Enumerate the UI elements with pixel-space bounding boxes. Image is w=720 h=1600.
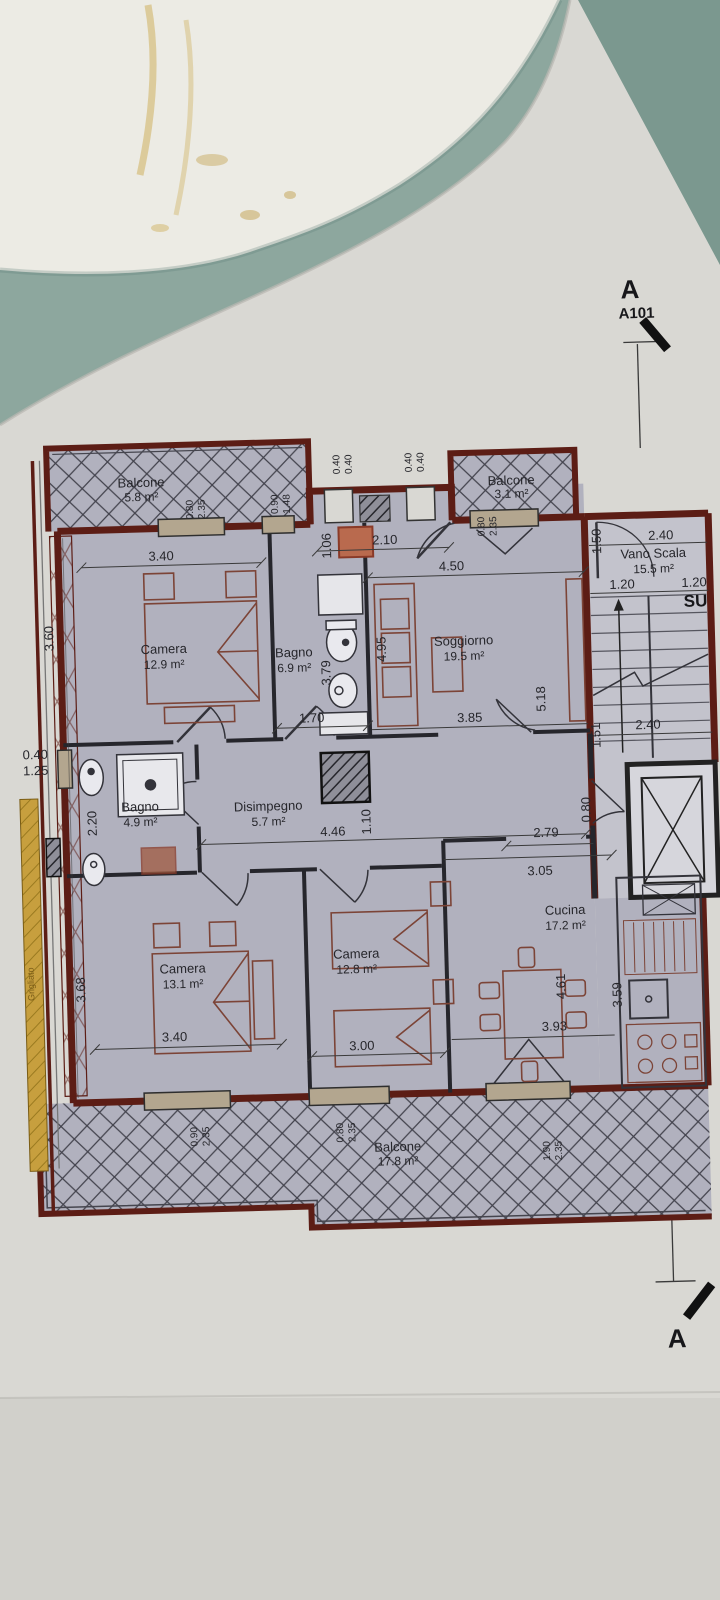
dim-scala-width: 2.40 — [648, 527, 674, 543]
disimpegno-area: 5.7 m² — [251, 814, 285, 829]
dim-hall-passage: 0.80 — [578, 797, 594, 823]
dim-soggiorno-width: 4.50 — [439, 558, 465, 574]
window-bagno1 — [262, 516, 294, 534]
dim-left-window-h: 1.25 — [23, 763, 49, 779]
section-letter-bottom: A — [667, 1323, 687, 1354]
dim-camera3-width: 3.00 — [349, 1038, 375, 1054]
dim-soggiorno-depth2: 5.18 — [533, 686, 549, 712]
bagno1-name: Bagno — [275, 644, 313, 660]
dim-bagno1-window-h: 1.48 — [281, 494, 293, 514]
dim-camera2-width: 3.40 — [162, 1029, 188, 1045]
dim-b2-door-h: 2.35 — [488, 516, 500, 536]
stairs-up-label: SU — [684, 591, 708, 611]
camera3-area: 12.8 m² — [336, 962, 377, 977]
dim-soggiorno-width2: 3.85 — [457, 710, 483, 726]
entry-cabinet — [338, 527, 373, 558]
camera2-name: Camera — [159, 960, 206, 976]
laundry-box — [141, 847, 176, 874]
balcone-tl-area: 5.8 m² — [124, 490, 158, 505]
dim-b1-window-w: 0.80 — [185, 499, 197, 519]
dim-bagno2-depth: 2.20 — [84, 811, 100, 837]
window-left-small — [57, 750, 72, 788]
window-camera3 — [309, 1086, 389, 1105]
paper-fold-shade — [0, 1398, 720, 1600]
balcone-b-name: Balcone — [374, 1138, 421, 1154]
soggiorno-area: 19.5 m² — [443, 648, 484, 663]
dim-cucina-top: 3.05 — [527, 863, 553, 879]
balcony-bottom — [38, 1085, 711, 1235]
dim-camera2-depth: 3.68 — [73, 977, 89, 1003]
pillar-left — [324, 489, 353, 523]
dim-cucina-door-h: 2.35 — [554, 1140, 566, 1160]
dim-flight1: 1.20 — [609, 576, 635, 592]
section-letter-top: A — [620, 274, 640, 305]
bagno1-area: 6.9 m² — [277, 660, 311, 675]
dim-entry-width: 2.10 — [372, 532, 398, 548]
dim-cam2-window-h: 2.35 — [201, 1126, 213, 1146]
pillar-right — [406, 487, 435, 521]
grating-strip-label: Grigliato — [26, 967, 37, 1001]
dim-pillar-left-h: 0.40 — [343, 454, 355, 474]
bagno2-area: 4.9 m² — [123, 815, 157, 830]
dim-pillar-left-w: 0.40 — [331, 454, 343, 474]
cucina-name: Cucina — [545, 902, 587, 918]
floor-plan-sheet: A A101 A — [0, 0, 720, 1600]
camera1-area: 12.9 m² — [144, 657, 185, 672]
section-code: A101 — [618, 305, 654, 323]
dim-b2-door-w: 0.80 — [476, 516, 488, 536]
balcone-tl-name: Balcone — [117, 474, 164, 490]
dim-camera1-width: 3.40 — [148, 548, 174, 564]
balcone-b-area: 17.8 m² — [378, 1154, 419, 1169]
dim-cucina-width: 3.93 — [542, 1018, 568, 1034]
door-cucina-balcony — [486, 1081, 570, 1100]
cucina-area: 17.2 m² — [545, 918, 586, 933]
dim-cucina-door-w: 1.90 — [542, 1141, 554, 1161]
soggiorno-name: Soggiorno — [434, 632, 494, 649]
vano-scala-name: Vano Scala — [620, 545, 687, 562]
dim-cucina-depth: 3.59 — [609, 982, 625, 1008]
pilaster-hatch — [46, 838, 61, 876]
photo-of-floor-plan: A A101 A — [0, 0, 720, 1600]
dim-bagno1-depth: 3.79 — [318, 660, 334, 686]
window-balcony-tl — [158, 518, 224, 537]
dim-corridor-width: 4.46 — [320, 823, 346, 839]
window-camera2 — [144, 1091, 230, 1110]
camera1-name: Camera — [140, 641, 187, 657]
dim-hall-width: 2.79 — [533, 824, 559, 840]
dim-pillar-right-h: 0.40 — [415, 452, 427, 472]
dim-niche-depth: 1.06 — [319, 533, 335, 559]
dim-flight2: 1.20 — [681, 574, 707, 590]
camera2-area: 13.1 m² — [163, 976, 204, 991]
dim-cam3-window-h: 2.35 — [347, 1122, 359, 1142]
dim-bagno1-window-w: 0.90 — [269, 494, 281, 514]
camera3-name: Camera — [333, 945, 380, 961]
dim-b1-window-h: 2.35 — [197, 499, 209, 519]
bagno2-name: Bagno — [121, 799, 159, 815]
niche-hatch-block — [360, 495, 391, 522]
dim-corridor-depth: 1.10 — [358, 809, 374, 835]
dim-left-window-w: 0.40 — [22, 747, 48, 763]
dim-camera1-depth: 3.60 — [41, 626, 57, 652]
dim-cam2-window-w: 0.90 — [189, 1126, 201, 1146]
dim-bagno1-width: 1.70 — [299, 710, 325, 726]
disimpegno-name: Disimpegno — [234, 798, 303, 815]
dim-cucina-depth2: 4.61 — [553, 974, 569, 1000]
dim-soggiorno-depth: 4.95 — [373, 636, 389, 662]
dim-cam3-window-w: 0.80 — [335, 1122, 347, 1142]
dim-landing-depth: 1.51 — [588, 723, 604, 749]
balcone-tr-area: 3.1 m² — [494, 486, 528, 501]
utility-shaft — [321, 752, 370, 803]
dim-pillar-right-w: 0.40 — [403, 452, 415, 472]
dim-landing-width: 2.40 — [635, 717, 661, 733]
vano-scala-area: 15.5 m² — [633, 561, 674, 576]
dim-scala-top: 1.50 — [589, 528, 605, 554]
